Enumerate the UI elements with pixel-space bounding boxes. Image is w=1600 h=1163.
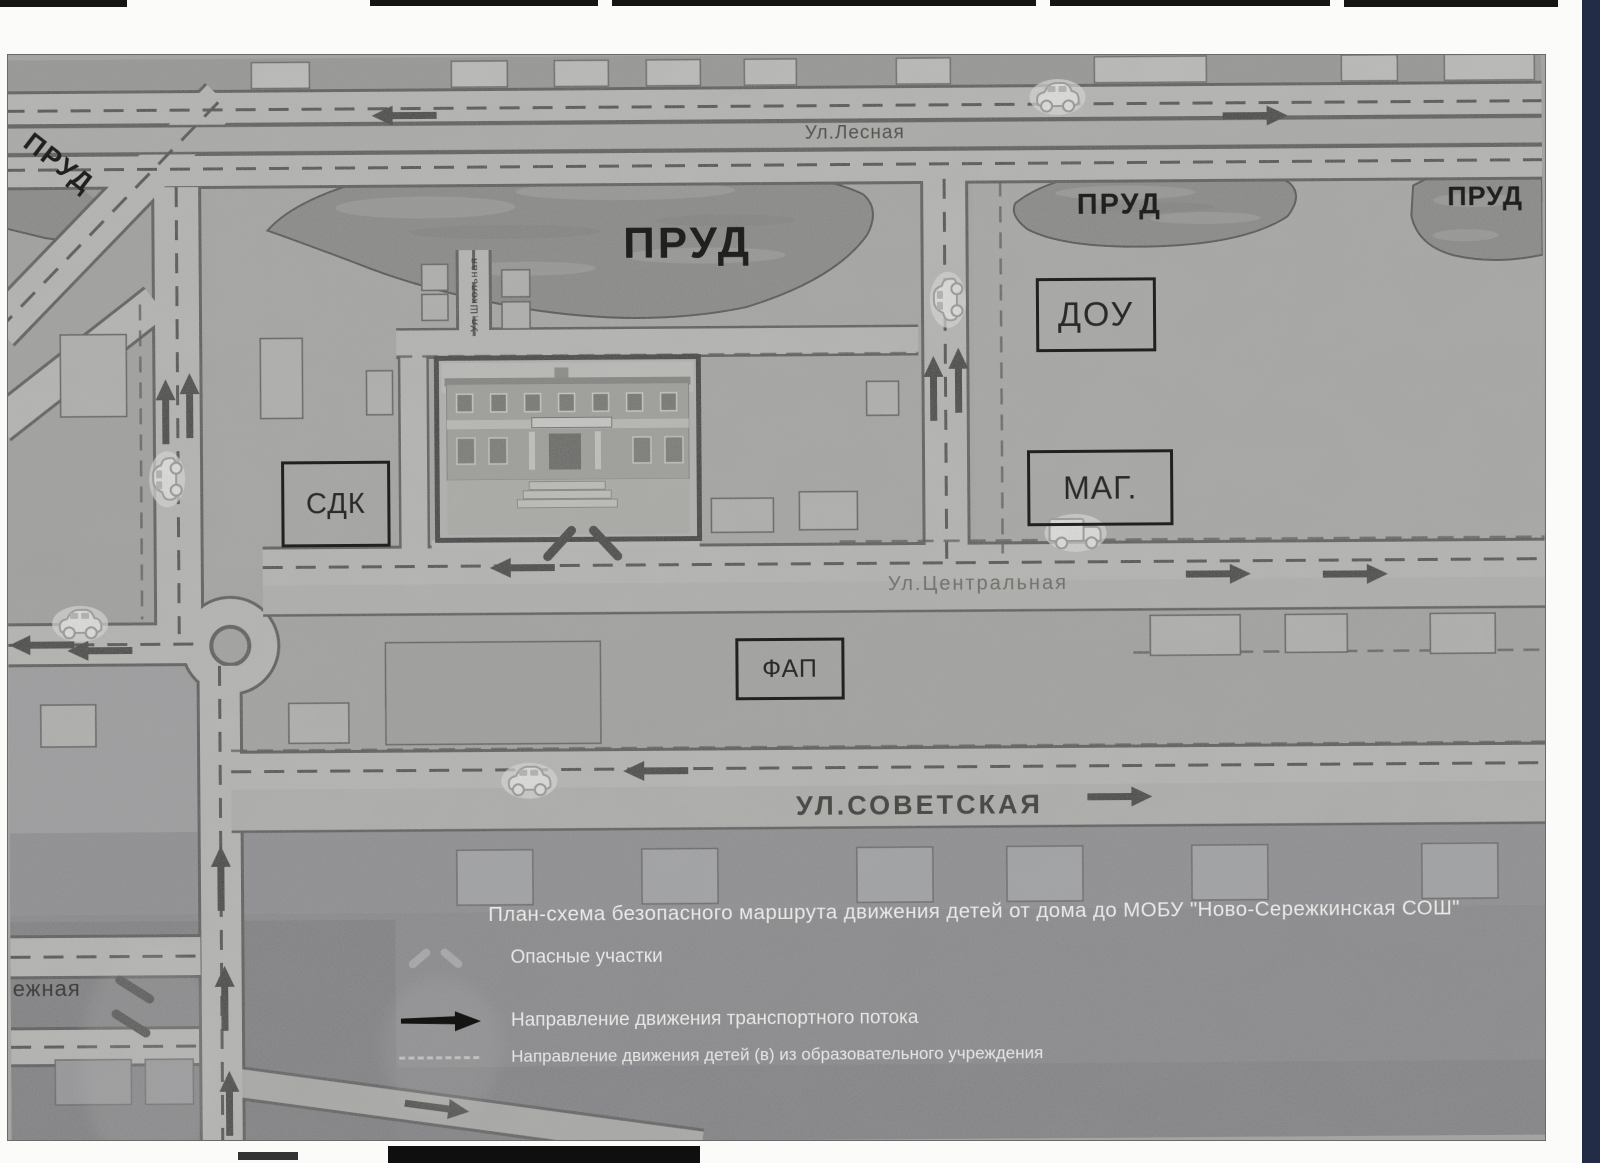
legend-item-traffic-flow: Направление движения транспортного поток…	[399, 1007, 919, 1033]
danger-area-mark-icon	[398, 949, 484, 968]
building-box-fap: ФАП	[735, 638, 844, 701]
building-box-sdk: СДК	[281, 461, 391, 548]
scan-artifact	[388, 1146, 700, 1163]
scan-artifact	[370, 0, 598, 6]
route-map: Ул.Лесная Ул.Школьная Ул.Центральная УЛ.…	[8, 55, 1545, 1140]
scan-edge-strip	[1582, 0, 1600, 1163]
pond-label-right: ПРУД	[1059, 184, 1179, 225]
building-box-mag: МАГ.	[1027, 449, 1174, 526]
pond-label-center: ПРУД	[587, 215, 787, 272]
legend-label: Направление движения детей (в) из образо…	[511, 1043, 1043, 1067]
scan-artifact	[238, 1152, 298, 1160]
children-route-dashes-icon	[399, 1056, 485, 1060]
traffic-flow-arrow-icon	[399, 1010, 485, 1033]
pond-label-far-right: ПРУД	[1447, 178, 1542, 215]
legend-label: Направление движения транспортного поток…	[511, 1007, 919, 1032]
scan-artifact	[612, 0, 1036, 6]
building-box-dou: ДОУ	[1036, 277, 1157, 352]
street-label-tsentralnaya: Ул.Центральная	[868, 571, 1088, 598]
street-label-naberezhnaya-partial: ежная	[13, 976, 133, 1003]
legend-label: Опасные участки	[510, 946, 662, 969]
scanned-route-plan-page: Ул.Лесная Ул.Школьная Ул.Центральная УЛ.…	[0, 0, 1600, 1163]
scan-artifact	[1050, 0, 1330, 6]
street-label-sovetskaya: УЛ.СОВЕТСКАЯ	[779, 787, 1059, 823]
scan-artifact	[1344, 0, 1558, 7]
street-label-shkolnaya: Ул.Школьная	[466, 240, 482, 350]
legend-item-danger: Опасные участки	[398, 946, 662, 970]
scan-artifact	[0, 0, 127, 7]
street-label-lesnaya: Ул.Лесная	[775, 119, 935, 147]
